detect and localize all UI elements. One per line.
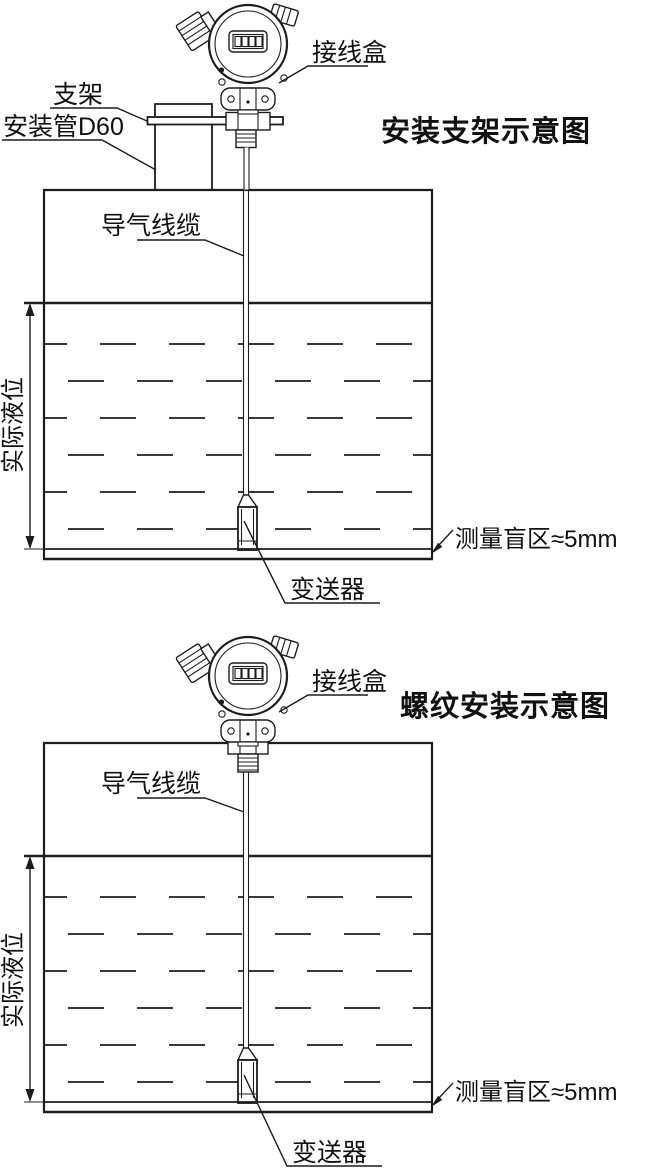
bracket-installation-diagram: 安装支架示意图 支架 安装管D60 接线盒 导气线缆 实际液位 变送器 测量盲区… <box>0 4 618 604</box>
blind-zone-label: 测量盲区≈5mm <box>455 526 618 553</box>
installation-diagram-page: 安装支架示意图 支架 安装管D60 接线盒 导气线缆 实际液位 变送器 测量盲区… <box>0 0 650 1171</box>
transmitter-head <box>176 4 299 114</box>
mount-pipe-label: 安装管D60 <box>3 113 124 141</box>
actual-level-label: 实际液位 <box>0 377 27 473</box>
junction-box-callout: 接线盒 <box>279 668 387 712</box>
junction-box-label: 接线盒 <box>312 668 387 696</box>
thread-installation-diagram: 螺纹安装示意图 接线盒 导气线缆 实际液位 变送器 测量盲区≈5mm <box>0 636 618 1167</box>
actual-level-label: 实际液位 <box>0 932 27 1028</box>
bracket-label: 支架 <box>53 81 103 109</box>
transmitter-callout: 变送器 <box>244 521 380 604</box>
top-diagram-title: 安装支架示意图 <box>381 114 591 148</box>
transmitter-label: 变送器 <box>292 1139 367 1167</box>
mounting-pipe-and-bracket <box>148 104 284 190</box>
air-cable-label: 导气线缆 <box>101 770 201 798</box>
junction-box-label: 接线盒 <box>312 39 387 67</box>
blind-zone-callout: 测量盲区≈5mm <box>431 526 618 554</box>
transmitter-head <box>176 636 299 746</box>
junction-box-callout: 接线盒 <box>279 39 387 83</box>
blind-zone-label: 测量盲区≈5mm <box>455 1079 618 1106</box>
transmitter-callout: 变送器 <box>244 1075 382 1167</box>
air-cable-label: 导气线缆 <box>101 212 201 240</box>
bottom-diagram-title: 螺纹安装示意图 <box>400 689 610 723</box>
tank <box>24 742 433 1112</box>
transmitter-label: 变送器 <box>290 576 365 604</box>
mount-pipe-callout: 安装管D60 <box>2 113 156 170</box>
air-cable-callout: 导气线缆 <box>101 770 244 812</box>
diagram-svg: 安装支架示意图 支架 安装管D60 接线盒 导气线缆 实际液位 变送器 测量盲区… <box>0 0 650 1171</box>
blind-zone-callout: 测量盲区≈5mm <box>431 1079 618 1107</box>
tank <box>24 189 433 559</box>
air-cable-callout: 导气线缆 <box>101 212 244 256</box>
